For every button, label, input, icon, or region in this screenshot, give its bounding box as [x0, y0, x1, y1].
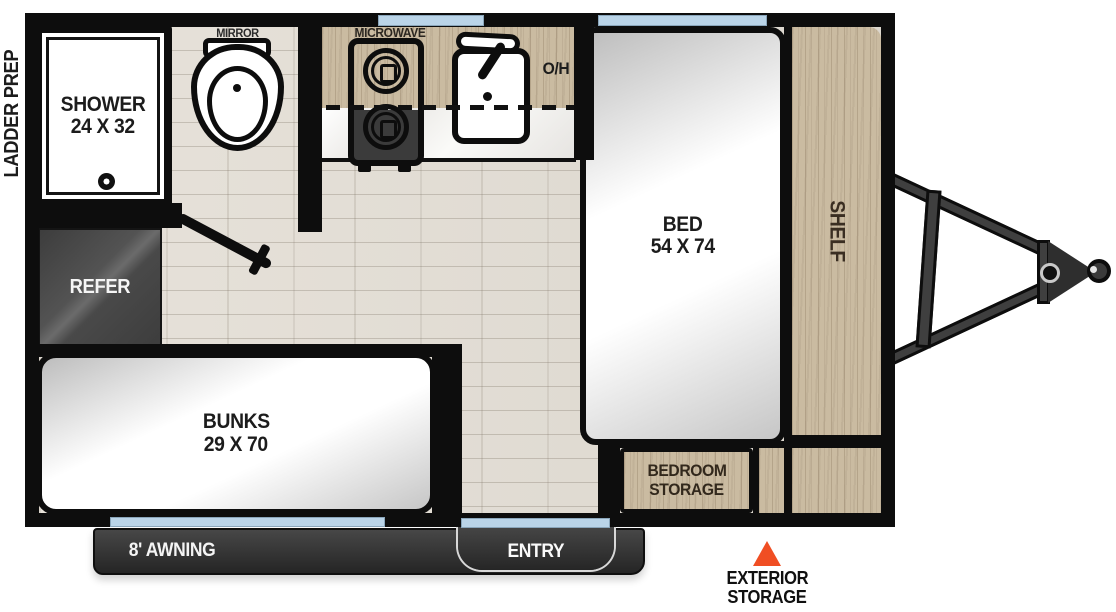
faucet-bar-icon: [456, 31, 521, 53]
bed-size-label: 54 X 74: [651, 236, 715, 258]
overhead-cabinet-dashed-line: [326, 105, 576, 110]
wall-bathroom-right: [298, 27, 322, 232]
exterior-storage-label-2: STORAGE: [727, 588, 806, 607]
bunks-label: BUNKS: [203, 411, 270, 433]
storage-divider-line: [753, 448, 759, 513]
bedroom-storage-cabinet: BEDROOM STORAGE: [620, 448, 753, 513]
exterior-storage-label: EXTERIOR STORAGE: [700, 569, 834, 607]
overhead-label: O/H: [532, 60, 580, 78]
ladder-prep-text: LADDER PREP: [1, 50, 22, 178]
storage-panel: [792, 448, 881, 513]
wall-bathroom-bottom: [25, 203, 182, 228]
entry-label: ENTRY: [508, 542, 565, 562]
wall-bunks-right: [432, 344, 462, 527]
bedroom-storage-label-1: BEDROOM: [647, 462, 726, 480]
shelf-label: SHELF: [825, 200, 847, 261]
hitch-tip-bolt-icon: [1040, 263, 1060, 283]
entry-step: ENTRY: [458, 521, 614, 570]
bunks-size-label: 29 X 70: [204, 434, 268, 456]
shower: SHOWER 24 X 32: [34, 25, 172, 207]
bed-label: BED: [663, 214, 703, 236]
hitch-coupler-highlight-icon: [1090, 266, 1097, 273]
wall-shelf-bottomline: [786, 435, 881, 448]
exterior-storage-marker-icon: [753, 541, 781, 566]
cooktop-icon: [348, 38, 424, 166]
entry-door-window: [461, 518, 610, 528]
wall-kitchen-right: [574, 27, 594, 160]
microwave-label: MICROWAVE: [333, 26, 447, 40]
bedroom-storage-label-2: STORAGE: [649, 481, 723, 499]
toilet-flush-dot-icon: [233, 84, 241, 92]
storage-panel: [759, 448, 784, 513]
shelf: SHELF: [792, 27, 881, 435]
wall-left: [25, 13, 39, 527]
shower-drain-icon: [98, 173, 115, 190]
hitch-upper-bar-icon: [887, 173, 1047, 257]
cooktop-foot-icon: [358, 164, 371, 172]
burner-icon: [363, 48, 409, 94]
shower-size-label: 24 X 32: [71, 116, 135, 138]
refrigerator: REFER: [38, 228, 162, 348]
cooktop-foot-icon: [398, 164, 411, 172]
wall-storage-stub: [598, 441, 620, 513]
burner-icon: [363, 104, 409, 150]
hitch-lower-bar-icon: [887, 282, 1047, 366]
ladder-prep-label: LADDER PREP: [0, 14, 26, 214]
awning-label: 8' AWNING: [129, 541, 216, 561]
wall-right: [881, 13, 895, 527]
wall-bed-shelf-divider: [784, 27, 792, 513]
bunks-mattress: BUNKS 29 X 70: [36, 352, 436, 515]
mirror-label: MIRROR: [203, 27, 272, 40]
window-bunks: [110, 517, 385, 527]
refer-label: REFER: [70, 277, 131, 298]
exterior-storage-label-1: EXTERIOR: [726, 569, 808, 588]
window-bed: [598, 15, 767, 26]
sink-drain-icon: [483, 92, 492, 101]
window-kitchen: [378, 15, 484, 26]
bed-mattress: BED 54 X 74: [580, 27, 786, 445]
floorplan-canvas: MICROWAVE O/H SHOWER 24 X 32 MIRROR REFE…: [0, 0, 1116, 612]
wall-refer-bunks: [25, 344, 462, 357]
hitch-crossbar-icon: [916, 190, 942, 349]
shower-label: SHOWER: [61, 94, 146, 116]
